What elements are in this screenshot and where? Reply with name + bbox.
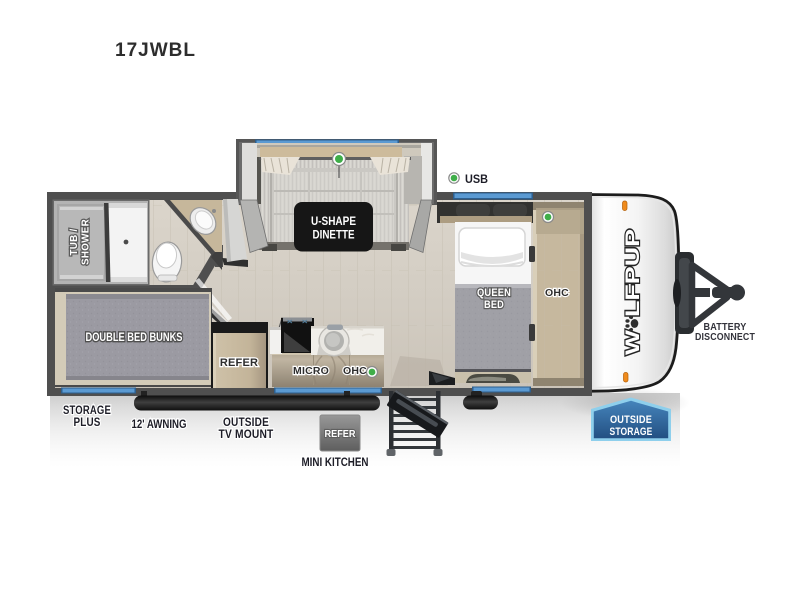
svg-text:USB: USB — [465, 174, 488, 186]
svg-text:OHC: OHC — [343, 365, 367, 377]
svg-text:QUEEN: QUEEN — [477, 287, 511, 299]
svg-text:SHOWER: SHOWER — [81, 219, 92, 265]
svg-text:DOUBLE BED BUNKS: DOUBLE BED BUNKS — [86, 332, 183, 344]
svg-text:REFER: REFER — [220, 357, 258, 369]
svg-text:STORAGE: STORAGE — [610, 426, 653, 438]
svg-text:MINI KITCHEN: MINI KITCHEN — [302, 457, 369, 469]
svg-text:DISCONNECT: DISCONNECT — [695, 331, 755, 343]
svg-text:W: W — [622, 330, 644, 355]
svg-text:12' AWNING: 12' AWNING — [132, 419, 187, 431]
svg-text:OHC: OHC — [545, 287, 569, 299]
svg-text:DINETTE: DINETTE — [313, 228, 355, 242]
svg-text:TV MOUNT: TV MOUNT — [219, 429, 274, 441]
svg-text:OUTSIDE: OUTSIDE — [610, 414, 652, 426]
svg-text:MICRO: MICRO — [293, 365, 329, 377]
svg-text:BED: BED — [484, 299, 504, 311]
svg-text:U-SHAPE: U-SHAPE — [311, 214, 356, 228]
svg-text:PLUS: PLUS — [74, 417, 101, 429]
svg-text:TUB /: TUB / — [69, 228, 80, 255]
svg-text:LFPUP: LFPUP — [622, 229, 644, 317]
svg-text:17JWBL: 17JWBL — [115, 40, 196, 61]
svg-text:REFER: REFER — [325, 428, 356, 440]
svg-text:OUTSIDE: OUTSIDE — [223, 417, 269, 429]
svg-text:STORAGE: STORAGE — [63, 405, 111, 417]
